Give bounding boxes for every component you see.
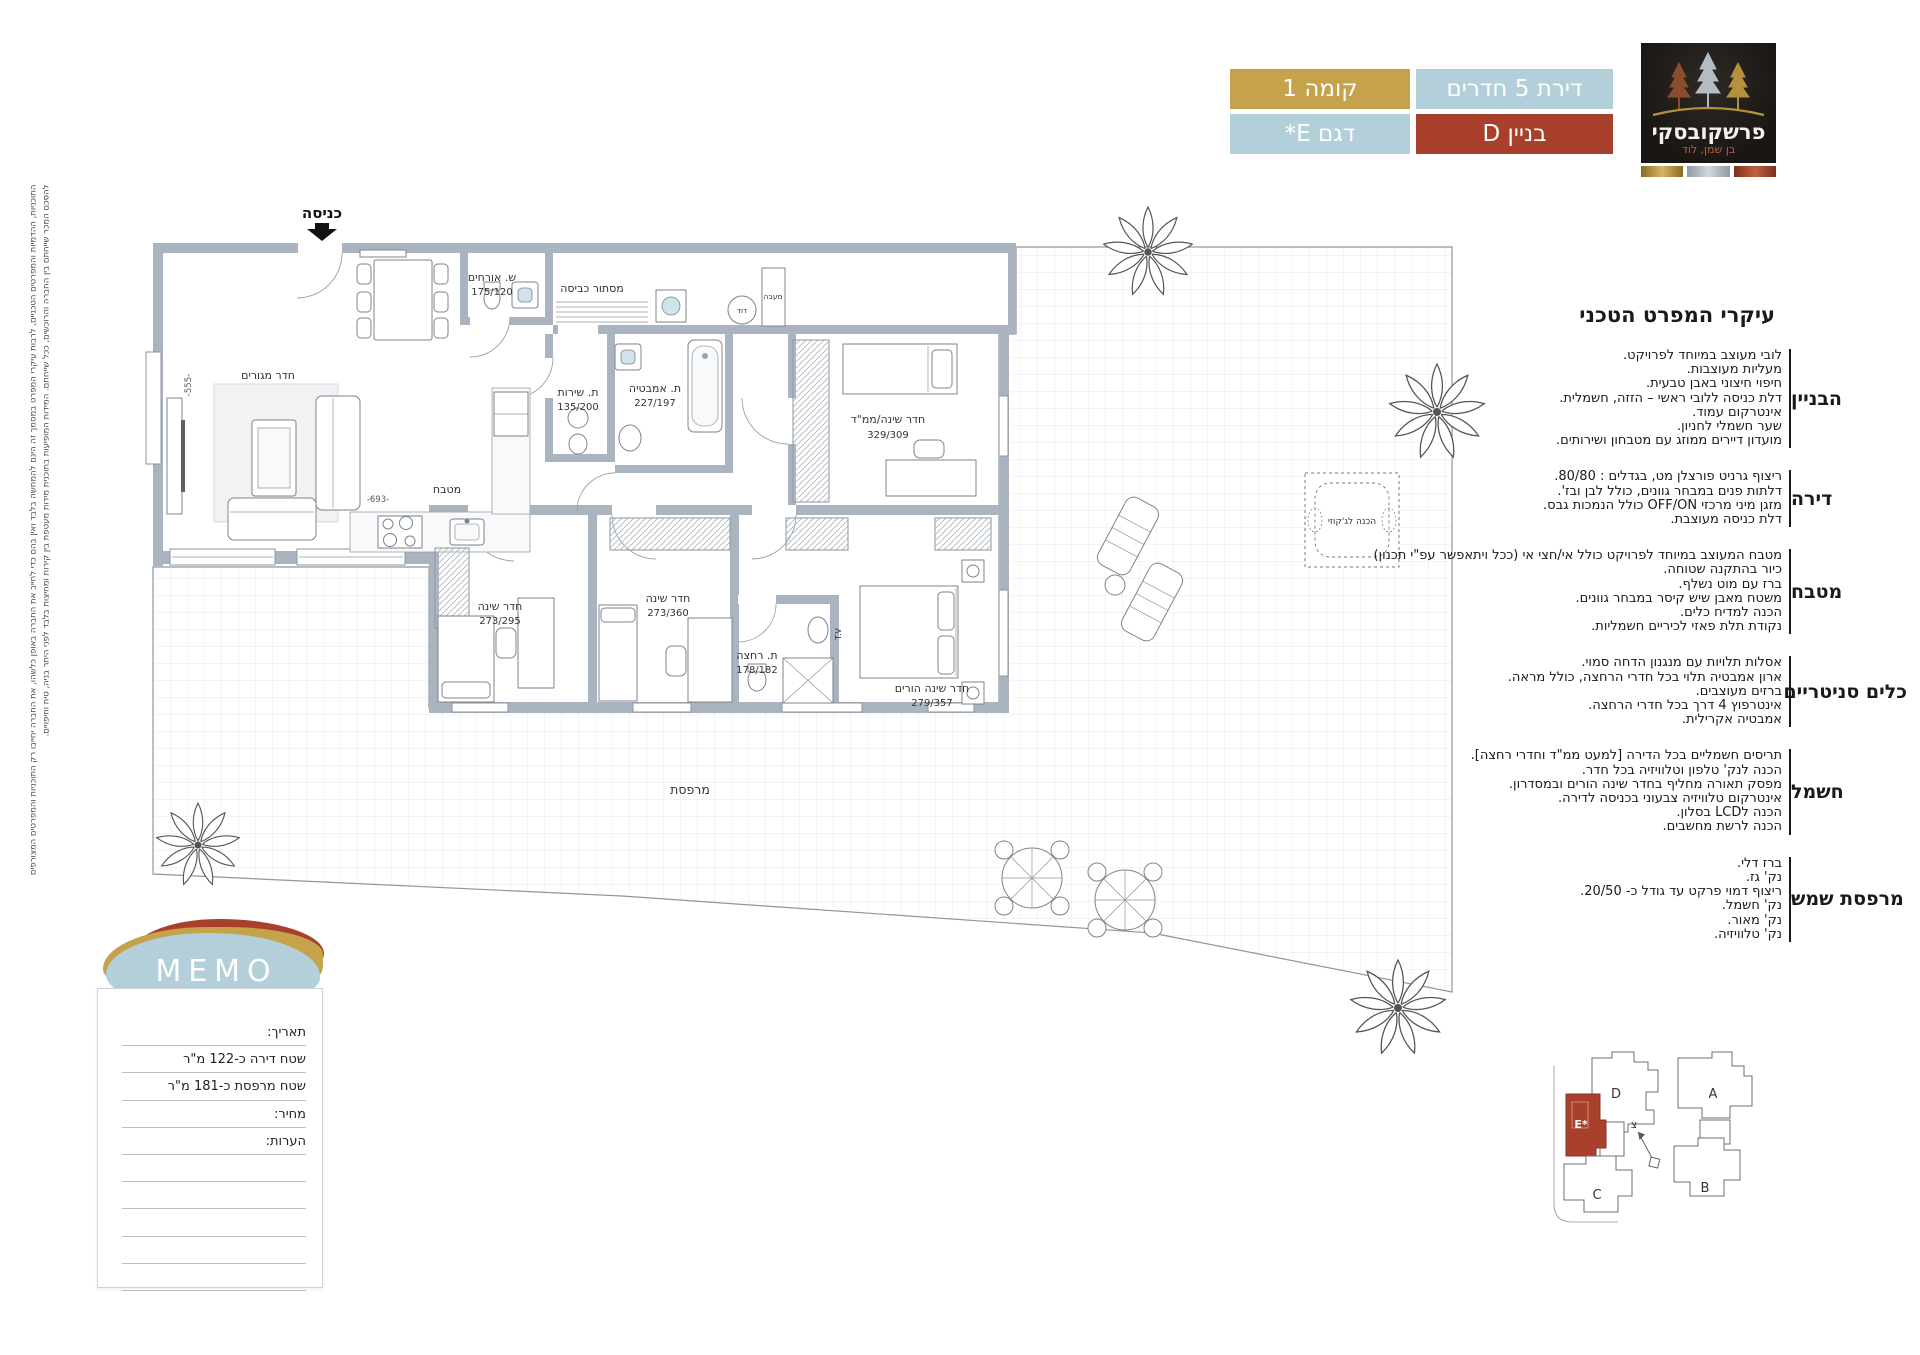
dim-master: 279/357: [911, 698, 953, 709]
spec-section-apartment: דירה ריצוף גרניט פורצלן מט, בגדלים : 80/…: [1470, 470, 1915, 527]
spec-line: נקודת תלת פאזי לכיריים חשמליות.: [1373, 620, 1782, 634]
label-terrace: מרפסת: [670, 782, 710, 797]
site-label-a: A: [1709, 1087, 1718, 1102]
memo-title: MEMO: [148, 954, 277, 989]
spec-line: הכנה לLCD בסלון.: [1471, 806, 1782, 820]
spec-heading: דירה: [1791, 488, 1915, 510]
building-a-outline: [1678, 1052, 1752, 1118]
label-bedroom3: חדר שינה: [646, 592, 691, 605]
bathroom-fixtures: [615, 340, 722, 451]
memo-empty-line: [122, 1237, 306, 1264]
spec-heading: הבניין: [1791, 388, 1915, 410]
spec-heading: כלים סניטריים: [1791, 681, 1915, 703]
memo-field-balcony-area: שטח מרפסת כ-181 מ"ר: [122, 1073, 306, 1100]
dim-mamad: 329/309: [867, 430, 909, 441]
spec-line: נק' מאור.: [1474, 914, 1782, 928]
living-room-furniture: [167, 250, 448, 540]
spec-line: שער חשמלי לחניון.: [1474, 420, 1782, 434]
entrance-label: כניסה: [302, 204, 342, 222]
memo-field-apartment-area: שטח דירה כ-122 מ"ר: [122, 1046, 306, 1073]
spec-line: דלת כניסה ללובי ראשי – הזזה, חשמלית.: [1474, 392, 1782, 406]
spec-line: מעליות מעוצבות.: [1474, 363, 1782, 377]
laundry-area: [556, 268, 785, 326]
spec-line: אמבטיה אקרילית.: [1474, 713, 1782, 727]
svg-text:צ: צ: [1631, 1118, 1638, 1131]
memo-empty-line: [122, 1209, 306, 1236]
label-service-wc: ת. שירות: [558, 386, 599, 399]
label-mamad: חדר שינה/ממ"ד: [851, 413, 925, 426]
spec-lines: ברז דלי. נק' גז. ריצוף דמוי פרקט עד גודל…: [1470, 857, 1789, 942]
technical-specs: עיקרי המפרט הטכני הבניין לובי מעוצב במיו…: [1470, 303, 1915, 942]
site-label-c: C: [1592, 1188, 1601, 1203]
spec-line: דלתות פנים במבחר גוונים, כולל לבן ובז'.: [1474, 485, 1782, 499]
spec-line: נק' חשמל.: [1474, 899, 1782, 913]
dim-bathroom: 227/197: [634, 398, 676, 409]
spec-lines: ריצוף גרניט פורצלן מט, בגדלים : 80/80. ד…: [1470, 470, 1789, 527]
spec-line: ריצוף גרניט פורצלן מט, בגדלים : 80/80.: [1474, 470, 1782, 484]
spec-line: ברז דלי.: [1474, 857, 1782, 871]
site-label-d: D: [1611, 1087, 1621, 1102]
label-boiler: דוד: [737, 306, 747, 315]
specs-title: עיקרי המפרט הטכני: [1470, 303, 1775, 327]
spec-heading: מטבח: [1791, 581, 1915, 603]
spec-line: מזגן מיני מרכזי OFF/ON כולל הנמכות גבס.: [1474, 499, 1782, 513]
spec-line: ריצוף דמוי פרקט עד גודל כ- 20/50.: [1474, 885, 1782, 899]
service-wc-fixtures: [568, 408, 588, 454]
memo-empty-line: [122, 1182, 306, 1209]
memo-field-notes: הערות:: [122, 1128, 306, 1155]
spec-divider: [1789, 349, 1791, 448]
spec-line: מטבח המעוצב במיוחד לפרויקט כולל אי/חצי א…: [1373, 549, 1782, 563]
label-laundry: מסתור כביסה: [560, 282, 624, 295]
spec-line: אינטרקום טלוויזיה צבעוני בכניסה לדירה.: [1471, 792, 1782, 806]
label-shower: ת. רחצה: [736, 649, 777, 662]
spec-line: ארון אמבטיה תלוי בכל חדרי הרחצה, כולל מר…: [1474, 671, 1782, 685]
spec-line: תריסים חשמליים בכל הדירה [למעט ממ"ד וחדר…: [1471, 749, 1782, 763]
spec-section-electric: חשמל תריסים חשמליים בכל הדירה [למעט ממ"ד…: [1470, 749, 1915, 834]
spec-divider: [1789, 749, 1791, 834]
brochure-page: התוכניות, ההדמיות והמפרטים הטכניים, לרבו…: [0, 0, 1920, 1355]
spec-section-kitchen: מטבח מטבח המעוצב במיוחד לפרויקט כולל אי/…: [1470, 549, 1915, 634]
label-condenser: מעבה: [763, 292, 782, 301]
memo-empty-line: [122, 1264, 306, 1291]
dim-guest-wc: 175/120: [471, 287, 513, 298]
spec-heading: מרפסת שמש: [1791, 888, 1915, 910]
spec-line: משטח מאבן שיש קיסר במבחר גוונים.: [1373, 592, 1782, 606]
memo-rows: תאריך: שטח דירה כ-122 מ"ר שטח מרפסת כ-18…: [98, 1019, 322, 1291]
spec-line: ברזים מעוצבים.: [1474, 685, 1782, 699]
spec-section-building: הבניין לובי מעוצב במיוחד לפרויקט. מעליות…: [1470, 349, 1915, 448]
spec-divider: [1789, 470, 1791, 527]
label-master: חדר שינה הורים: [895, 682, 969, 695]
kitchen-furniture: [350, 388, 530, 552]
spec-line: מועדון דיירים ממוזג עם מטבחון ושירותים.: [1474, 434, 1782, 448]
label-jacuzzi: הכנה לג'קוזי: [1328, 517, 1376, 527]
label-tv: T.V: [834, 628, 843, 641]
spec-line: ברז עם מוט נשלף.: [1373, 578, 1782, 592]
spec-line: הכנה למדיח כלים.: [1373, 606, 1782, 620]
spec-line: לובי מעוצב במיוחד לפרויקט.: [1474, 349, 1782, 363]
building-c-outline: [1564, 1156, 1632, 1212]
spec-line: אינטרקום עמוד.: [1474, 406, 1782, 420]
spec-divider: [1789, 857, 1791, 942]
spec-line: אינטרפוץ 4 דרך בכל חדרי הרחצה.: [1474, 699, 1782, 713]
spec-divider: [1789, 549, 1791, 634]
memo-empty-line: [122, 1155, 306, 1182]
label-guest-wc: ש. אורחים: [468, 271, 516, 284]
label-bedroom2: חדר שינה: [478, 600, 523, 613]
site-plan: D E* C A B צ: [1554, 1052, 1752, 1222]
label-bathroom: ת. אמבטיה: [629, 382, 681, 395]
spec-lines: תריסים חשמליים בכל הדירה [למעט ממ"ד וחדר…: [1467, 749, 1789, 834]
spec-line: נק' גז.: [1474, 871, 1782, 885]
spec-section-sanitary: כלים סניטריים אסלות תלויות עם מנגנון הדח…: [1470, 656, 1915, 727]
dim-living-v: -555-: [184, 374, 194, 396]
label-kitchen: מטבח: [433, 483, 461, 496]
dim-shower: 178/182: [736, 665, 778, 676]
spec-lines: מטבח המעוצב במיוחד לפרויקט כולל אי/חצי א…: [1369, 549, 1789, 634]
dim-bedroom2: 273/295: [479, 616, 521, 627]
site-label-e: E*: [1574, 1118, 1588, 1131]
spec-lines: אסלות תלויות עם מנגנון הדחה סמוי. ארון א…: [1470, 656, 1789, 727]
dim-living-h: -693-: [367, 495, 389, 505]
dim-service-wc: 135/200: [557, 402, 599, 413]
spec-line: מפסק תאורה מחליף בחדר שינה הורים ובמסדרו…: [1471, 778, 1782, 792]
spec-line: נק' טלוויזיה.: [1474, 928, 1782, 942]
spec-line: הכנה לרשת מחשבים.: [1471, 820, 1782, 834]
spec-line: אסלות תלויות עם מנגנון הדחה סמוי.: [1474, 656, 1782, 670]
memo-pad: תאריך: שטח דירה כ-122 מ"ר שטח מרפסת כ-18…: [97, 988, 323, 1288]
label-living: חדר מגורים: [241, 369, 295, 382]
spec-line: חיפוי חיצוני באבן טבעית.: [1474, 377, 1782, 391]
north-arrow-icon: צ: [1631, 1118, 1660, 1168]
spec-lines: לובי מעוצב במיוחד לפרויקט. מעליות מעוצבו…: [1470, 349, 1789, 448]
entrance-arrow-icon: [307, 223, 337, 241]
spec-section-balcony: מרפסת שמש ברז דלי. נק' גז. ריצוף דמוי פר…: [1470, 857, 1915, 942]
dim-bedroom3: 273/360: [647, 608, 689, 619]
spec-line: דלת כניסה מעוצבת.: [1474, 513, 1782, 527]
spec-heading: חשמל: [1791, 781, 1915, 803]
spec-line: הכנה לנק' טלפון וטלוויזיה בכל חדר.: [1471, 764, 1782, 778]
memo-field-price: מחיר:: [122, 1101, 306, 1128]
memo-field-date: תאריך:: [122, 1019, 306, 1046]
spec-divider: [1789, 656, 1791, 727]
site-label-b: B: [1701, 1181, 1710, 1196]
spec-line: כיור בהתקנה שטוחה.: [1373, 563, 1782, 577]
